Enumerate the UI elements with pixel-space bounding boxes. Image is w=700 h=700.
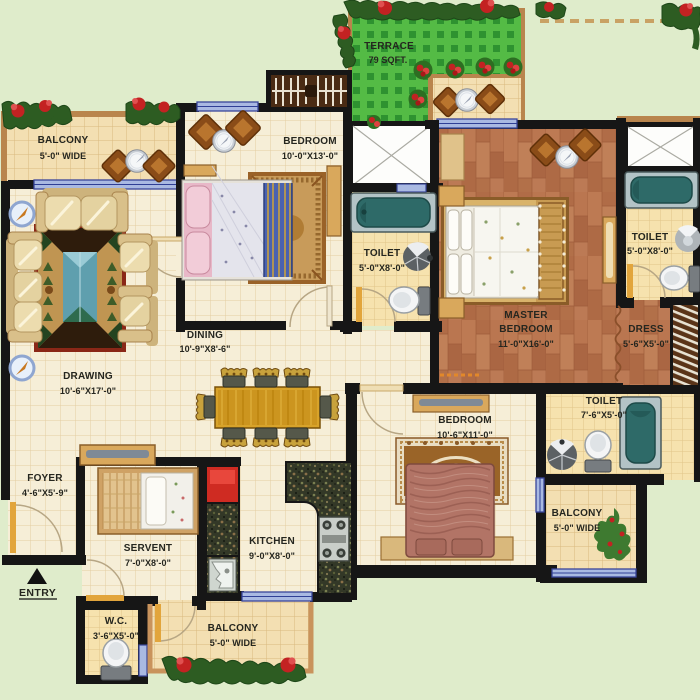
svg-text:BALCONY: BALCONY xyxy=(208,623,259,634)
svg-text:5'-0" WIDE: 5'-0" WIDE xyxy=(210,638,256,648)
svg-text:BALCONY: BALCONY xyxy=(38,135,89,146)
svg-text:11'-0"X16'-0": 11'-0"X16'-0" xyxy=(498,339,554,349)
svg-text:7'-0"X8'-0": 7'-0"X8'-0" xyxy=(125,558,171,568)
svg-text:5'-0"X8'-0": 5'-0"X8'-0" xyxy=(359,263,405,273)
svg-text:W.C.: W.C. xyxy=(105,616,127,627)
svg-text:DINING: DINING xyxy=(187,330,223,341)
svg-text:5'-0" WIDE: 5'-0" WIDE xyxy=(554,523,600,533)
svg-text:KITCHEN: KITCHEN xyxy=(249,536,295,547)
svg-text:10'-9"X8'-6": 10'-9"X8'-6" xyxy=(179,344,230,354)
svg-text:BEDROOM: BEDROOM xyxy=(499,324,553,335)
svg-text:5'-0" WIDE: 5'-0" WIDE xyxy=(40,151,86,161)
svg-text:TERRACE: TERRACE xyxy=(364,41,414,52)
svg-text:TOILET: TOILET xyxy=(586,396,623,407)
svg-text:10'-6"X17'-0": 10'-6"X17'-0" xyxy=(60,386,116,396)
svg-text:BALCONY: BALCONY xyxy=(552,508,603,519)
svg-text:7'-6"X5'-0": 7'-6"X5'-0" xyxy=(581,410,627,420)
svg-text:ENTRY: ENTRY xyxy=(19,587,56,599)
svg-text:FOYER: FOYER xyxy=(27,473,63,484)
svg-text:10'-0"X13'-0": 10'-0"X13'-0" xyxy=(282,151,338,161)
svg-text:MASTER: MASTER xyxy=(504,310,548,321)
svg-text:79 SQFT.: 79 SQFT. xyxy=(369,55,408,65)
svg-text:3'-6"X5'-0": 3'-6"X5'-0" xyxy=(93,631,139,641)
svg-text:TOILET: TOILET xyxy=(364,248,401,259)
svg-text:DRESS: DRESS xyxy=(628,324,664,335)
svg-text:9'-0"X8'-0": 9'-0"X8'-0" xyxy=(249,551,295,561)
svg-text:BEDROOM: BEDROOM xyxy=(283,136,337,147)
svg-text:5'-0"X8'-0": 5'-0"X8'-0" xyxy=(627,246,673,256)
svg-text:DRAWING: DRAWING xyxy=(63,371,113,382)
svg-text:SERVENT: SERVENT xyxy=(124,543,172,554)
svg-text:10'-6"X11'-0": 10'-6"X11'-0" xyxy=(437,430,493,440)
svg-text:BEDROOM: BEDROOM xyxy=(438,415,492,426)
svg-text:4'-6"X5'-9": 4'-6"X5'-9" xyxy=(22,488,68,498)
svg-text:5'-6"X5'-0": 5'-6"X5'-0" xyxy=(623,339,669,349)
svg-text:TOILET: TOILET xyxy=(632,232,669,243)
